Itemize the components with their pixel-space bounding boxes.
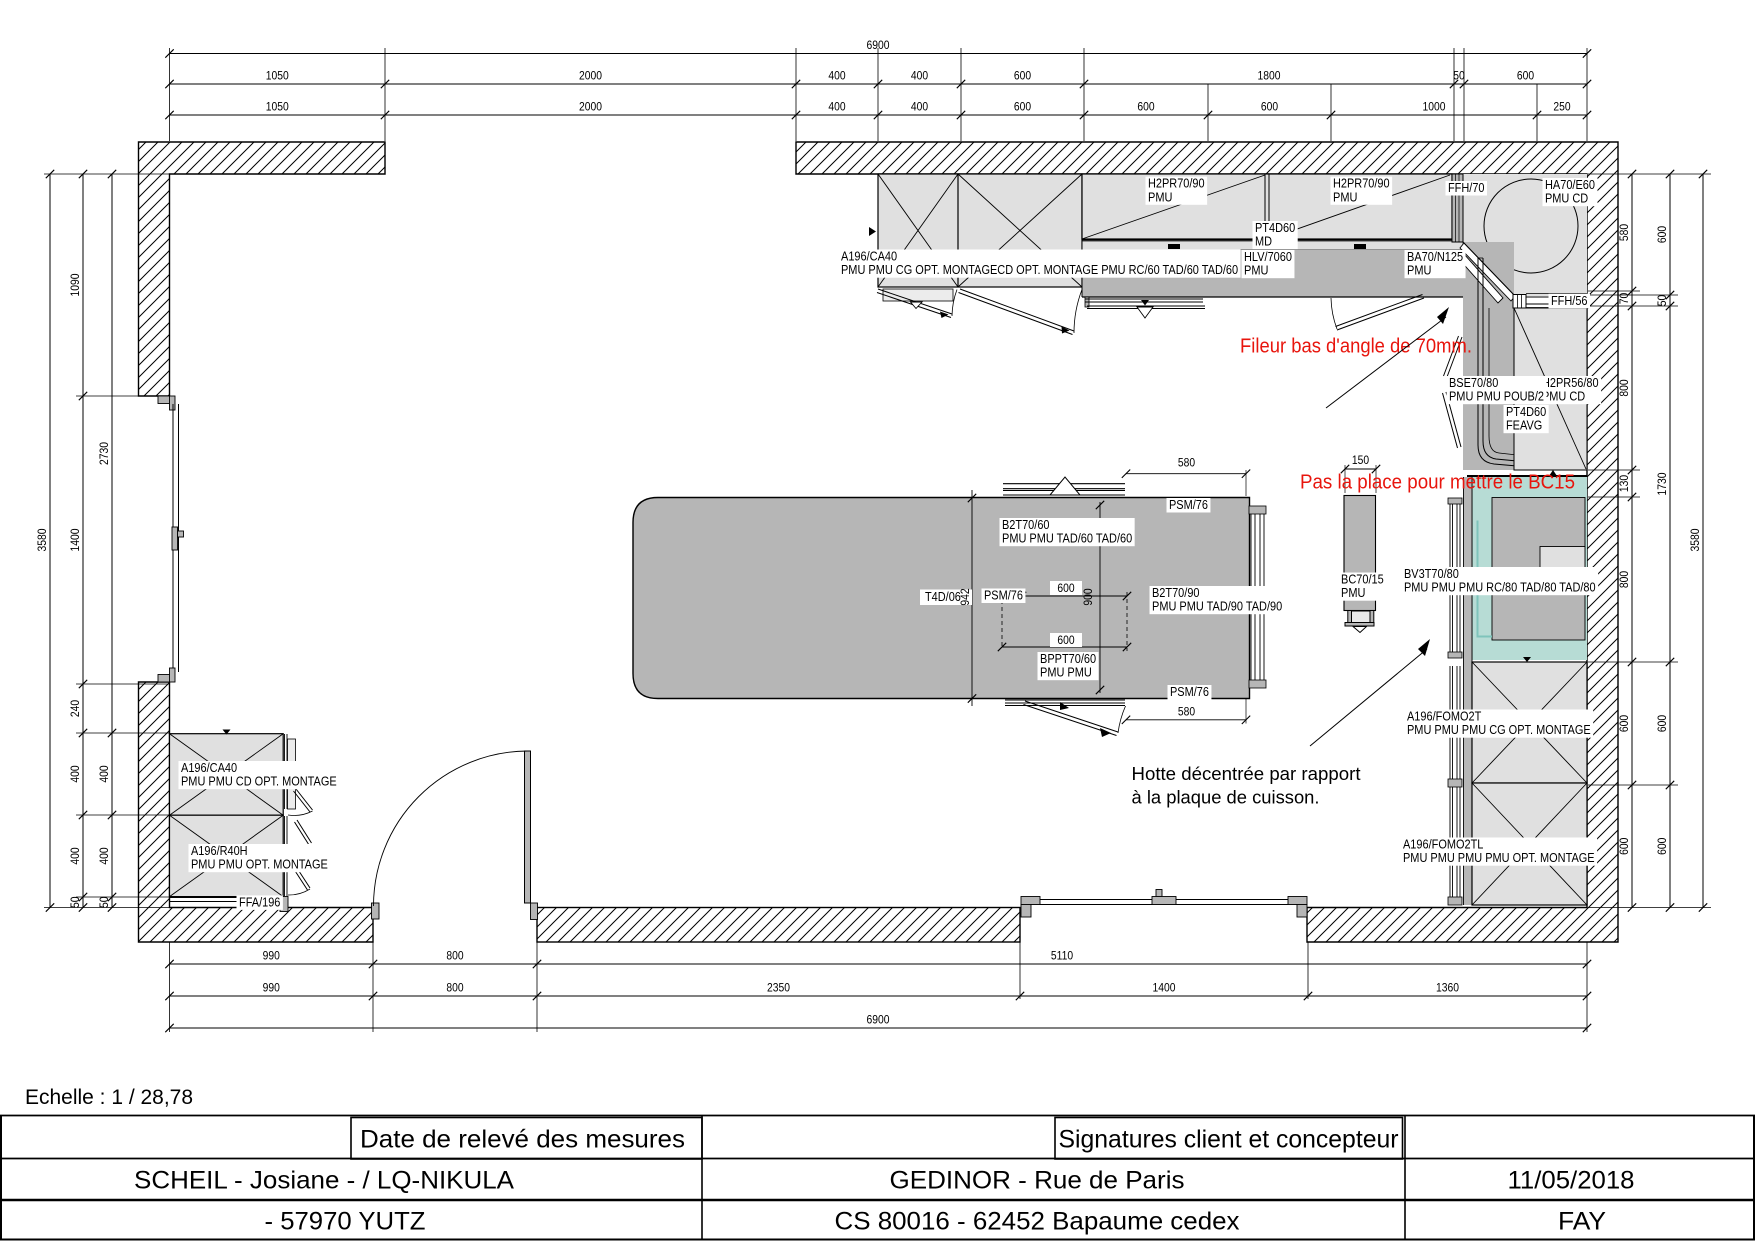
svg-text:580: 580 bbox=[1178, 456, 1195, 470]
svg-text:580: 580 bbox=[1178, 705, 1195, 719]
svg-text:50: 50 bbox=[68, 896, 82, 908]
svg-text:600: 600 bbox=[1261, 100, 1278, 114]
svg-text:T4D/06: T4D/06 bbox=[925, 589, 961, 604]
svg-text:600: 600 bbox=[1517, 69, 1534, 83]
svg-text:MD: MD bbox=[1255, 234, 1272, 249]
svg-text:1050: 1050 bbox=[266, 100, 289, 114]
svg-text:FFA/196: FFA/196 bbox=[239, 894, 280, 909]
svg-text:900: 900 bbox=[1081, 588, 1095, 605]
svg-text:2730: 2730 bbox=[97, 442, 111, 465]
svg-text:PMU PMU PMU RC/80 TAD/80 TAD/8: PMU PMU PMU RC/80 TAD/80 TAD/80 bbox=[1404, 580, 1596, 595]
svg-text:400: 400 bbox=[828, 100, 845, 114]
svg-text:à la plaque de cuisson.: à la plaque de cuisson. bbox=[1132, 787, 1320, 808]
svg-text:FFH/70: FFH/70 bbox=[1448, 180, 1485, 195]
svg-text:PMU PMU TAD/60 TAD/60: PMU PMU TAD/60 TAD/60 bbox=[1002, 531, 1132, 546]
svg-text:600: 600 bbox=[1014, 100, 1031, 114]
svg-text:600: 600 bbox=[1655, 226, 1669, 243]
svg-text:PMU: PMU bbox=[1244, 263, 1268, 278]
svg-text:400: 400 bbox=[68, 765, 82, 782]
svg-text:942: 942 bbox=[958, 588, 972, 605]
svg-text:400: 400 bbox=[828, 69, 845, 83]
svg-text:PMU PMU CG OPT. MONTAGECD OPT.: PMU PMU CG OPT. MONTAGECD OPT. MONTAGE P… bbox=[841, 262, 1238, 277]
svg-text:- 57970 YUTZ: - 57970 YUTZ bbox=[265, 1208, 426, 1236]
svg-text:1400: 1400 bbox=[68, 528, 82, 551]
svg-text:3580: 3580 bbox=[35, 528, 49, 551]
svg-text:580: 580 bbox=[1617, 224, 1631, 241]
svg-text:Date de relevé des mesures: Date de relevé des mesures bbox=[360, 1126, 685, 1154]
svg-text:PMU PMU PMU PMU OPT. MONTAGE: PMU PMU PMU PMU OPT. MONTAGE bbox=[1403, 850, 1595, 865]
svg-text:PMU: PMU bbox=[1148, 189, 1172, 204]
svg-text:2000: 2000 bbox=[579, 69, 602, 83]
svg-text:PMU PMU POUB/2: PMU PMU POUB/2 bbox=[1449, 389, 1544, 404]
svg-text:600: 600 bbox=[1014, 69, 1031, 83]
svg-text:50: 50 bbox=[97, 896, 111, 908]
svg-text:400: 400 bbox=[911, 69, 928, 83]
svg-text:400: 400 bbox=[911, 100, 928, 114]
svg-text:Hotte décentrée par rapport: Hotte décentrée par rapport bbox=[1132, 763, 1361, 784]
svg-text:990: 990 bbox=[263, 949, 280, 963]
svg-text:11/05/2018: 11/05/2018 bbox=[1508, 1167, 1635, 1195]
svg-text:2000: 2000 bbox=[579, 100, 602, 114]
svg-text:150: 150 bbox=[1352, 453, 1369, 467]
svg-text:1800: 1800 bbox=[1258, 69, 1281, 83]
svg-text:PMU CD: PMU CD bbox=[1542, 389, 1585, 404]
svg-text:CS 80016 - 62452 Bapaume cedex: CS 80016 - 62452 Bapaume cedex bbox=[835, 1208, 1241, 1236]
svg-text:FEAVG: FEAVG bbox=[1506, 418, 1542, 433]
svg-text:2350: 2350 bbox=[767, 981, 790, 995]
svg-text:1090: 1090 bbox=[68, 273, 82, 296]
svg-text:990: 990 bbox=[263, 981, 280, 995]
svg-text:5110: 5110 bbox=[1051, 949, 1073, 963]
svg-text:130: 130 bbox=[1617, 475, 1631, 492]
svg-text:PSM/76: PSM/76 bbox=[984, 588, 1023, 603]
svg-text:1400: 1400 bbox=[1153, 981, 1176, 995]
svg-text:FFH/56: FFH/56 bbox=[1551, 293, 1588, 308]
svg-text:600: 600 bbox=[1617, 837, 1631, 854]
svg-text:FAY: FAY bbox=[1558, 1208, 1606, 1236]
svg-text:Signatures client et concepteu: Signatures client et concepteur bbox=[1059, 1126, 1399, 1154]
svg-text:50: 50 bbox=[1655, 294, 1669, 306]
svg-text:PMU CD: PMU CD bbox=[1545, 191, 1588, 206]
svg-text:Echelle : 1 / 28,78: Echelle : 1 / 28,78 bbox=[25, 1086, 193, 1109]
svg-text:PMU: PMU bbox=[1341, 585, 1365, 600]
svg-text:70: 70 bbox=[1617, 292, 1631, 304]
svg-text:1730: 1730 bbox=[1655, 472, 1669, 495]
svg-text:PMU PMU OPT. MONTAGE: PMU PMU OPT. MONTAGE bbox=[191, 857, 328, 872]
svg-text:PMU PMU TAD/90 TAD/90: PMU PMU TAD/90 TAD/90 bbox=[1152, 599, 1282, 614]
svg-text:50: 50 bbox=[1453, 69, 1465, 83]
svg-text:400: 400 bbox=[97, 847, 111, 864]
svg-text:250: 250 bbox=[1553, 100, 1570, 114]
svg-text:PMU PMU: PMU PMU bbox=[1040, 665, 1092, 680]
svg-text:800: 800 bbox=[1617, 379, 1631, 396]
svg-text:400: 400 bbox=[68, 847, 82, 864]
svg-text:1050: 1050 bbox=[266, 69, 289, 83]
svg-text:PSM/76: PSM/76 bbox=[1170, 684, 1209, 699]
svg-text:600: 600 bbox=[1655, 837, 1669, 854]
svg-text:800: 800 bbox=[1617, 571, 1631, 588]
svg-text:600: 600 bbox=[1057, 581, 1074, 595]
svg-text:600: 600 bbox=[1617, 715, 1631, 732]
svg-text:PMU PMU PMU CG OPT. MONTAGE: PMU PMU PMU CG OPT. MONTAGE bbox=[1407, 722, 1591, 737]
svg-text:1360: 1360 bbox=[1436, 981, 1459, 995]
svg-text:240: 240 bbox=[68, 700, 82, 717]
svg-text:800: 800 bbox=[446, 981, 463, 995]
svg-text:600: 600 bbox=[1057, 633, 1074, 647]
svg-text:3580: 3580 bbox=[1688, 528, 1702, 551]
svg-text:600: 600 bbox=[1137, 100, 1154, 114]
svg-text:PMU PMU CD OPT. MONTAGE: PMU PMU CD OPT. MONTAGE bbox=[181, 774, 337, 789]
svg-text:Fileur bas d'angle de 70mm.: Fileur bas d'angle de 70mm. bbox=[1240, 336, 1472, 358]
svg-text:SCHEIL - Josiane - / LQ-NIKULA: SCHEIL - Josiane - / LQ-NIKULA bbox=[134, 1167, 514, 1195]
svg-text:800: 800 bbox=[446, 949, 463, 963]
svg-text:GEDINOR - Rue de Paris: GEDINOR - Rue de Paris bbox=[890, 1167, 1185, 1195]
svg-text:600: 600 bbox=[1655, 715, 1669, 732]
svg-text:Pas la place pour mettre le BC: Pas la place pour mettre le BC15 bbox=[1300, 472, 1575, 494]
svg-text:PMU: PMU bbox=[1407, 263, 1431, 278]
svg-text:PMU: PMU bbox=[1333, 189, 1357, 204]
svg-text:PSM/76: PSM/76 bbox=[1169, 497, 1208, 512]
svg-text:400: 400 bbox=[97, 765, 111, 782]
svg-text:1000: 1000 bbox=[1423, 100, 1446, 114]
svg-text:6900: 6900 bbox=[867, 1013, 890, 1027]
